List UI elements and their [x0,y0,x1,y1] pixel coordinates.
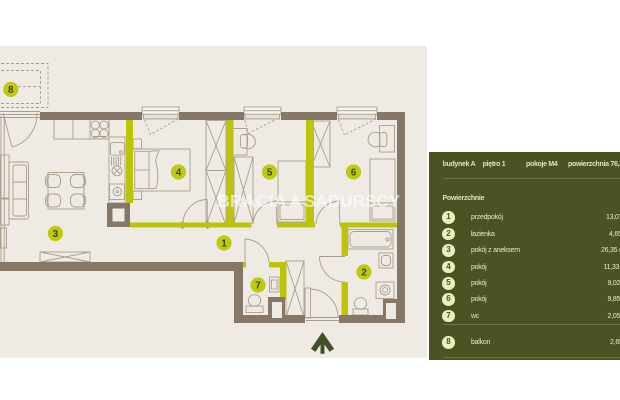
svg-text:2: 2 [361,268,367,279]
svg-text:6: 6 [351,168,357,179]
svg-text:1: 1 [221,239,227,250]
svg-text:4: 4 [176,168,182,179]
svg-text:SADURSCY: SADURSCY [304,191,400,211]
svg-text:5: 5 [267,168,273,179]
svg-text:BRACIA: BRACIA [217,191,287,211]
svg-text:7: 7 [255,281,261,292]
svg-text:3: 3 [53,229,59,240]
svg-text:8: 8 [8,85,14,96]
